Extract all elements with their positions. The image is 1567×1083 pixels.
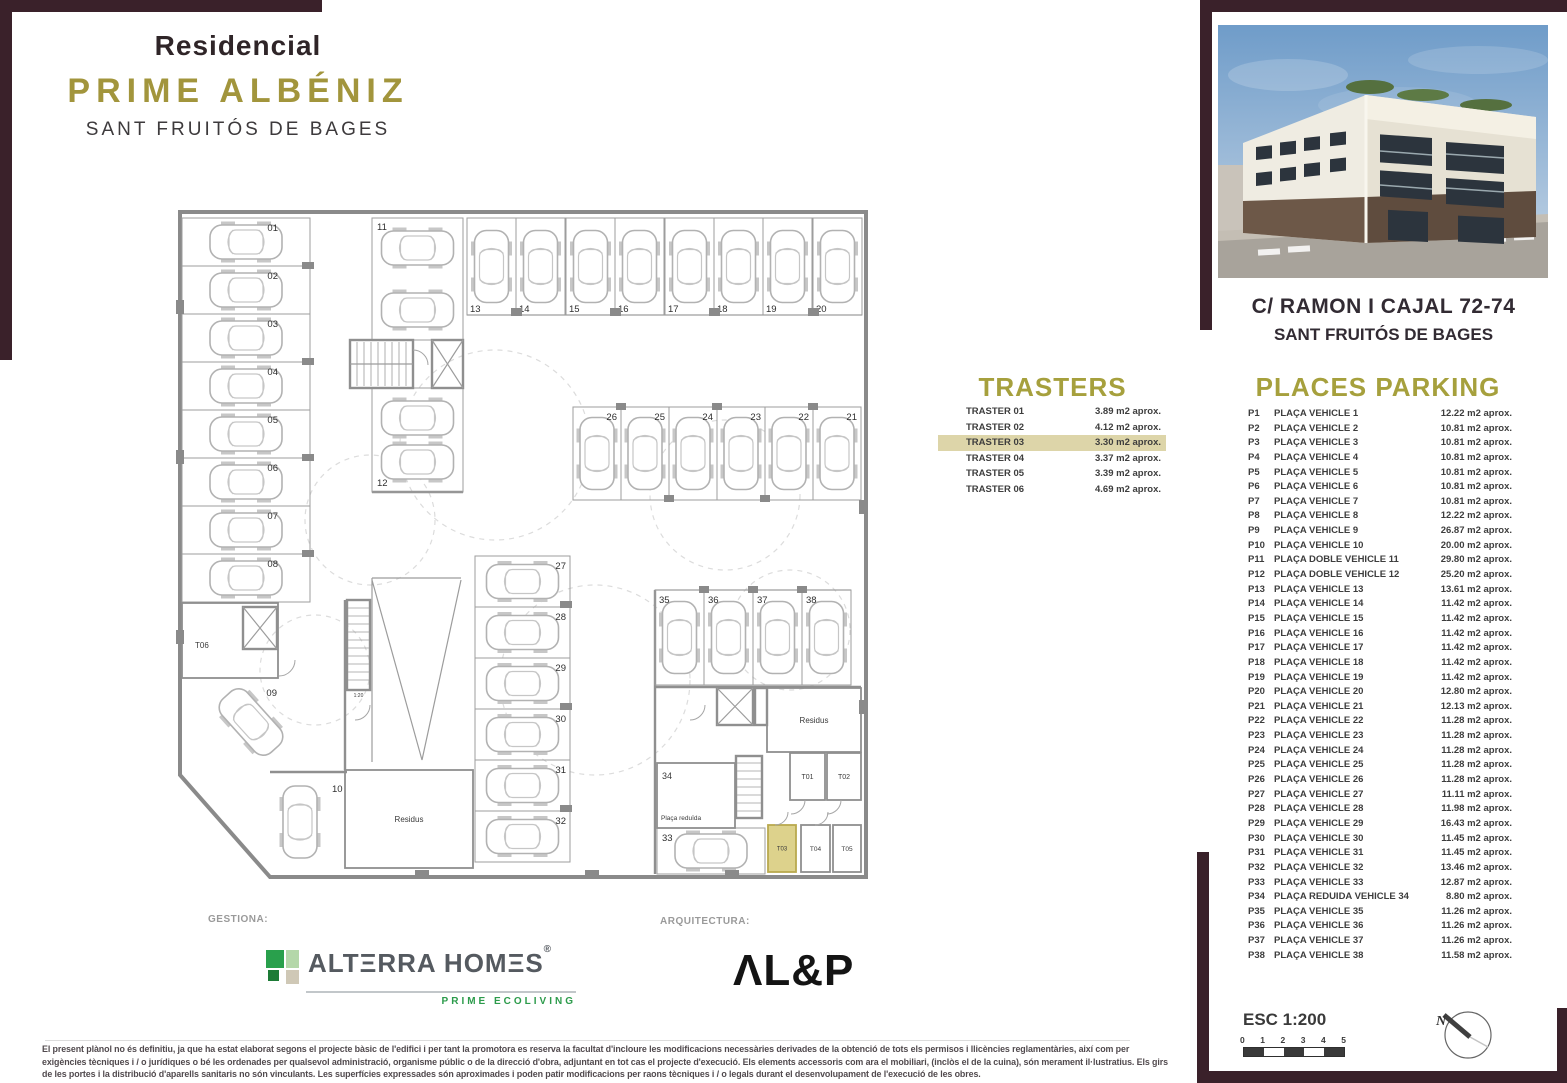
- parking-area: 11.42 m2 aprox.: [1441, 656, 1512, 671]
- compass-north-label: N: [1435, 1014, 1447, 1029]
- parking-name: PLAÇA VEHICLE 6: [1274, 480, 1358, 495]
- parking-area: 11.28 m2 aprox.: [1441, 744, 1512, 759]
- parking-code: P23: [1248, 729, 1265, 744]
- parking-name: PLAÇA VEHICLE 35: [1274, 905, 1363, 920]
- stall-number: 27: [555, 561, 566, 572]
- parking-name: PLAÇA VEHICLE 1: [1274, 407, 1358, 422]
- parking-row: P4PLAÇA VEHICLE 410.81 m2 aprox.: [1230, 451, 1522, 466]
- address-town: SANT FRUITÓS DE BAGES: [1200, 325, 1567, 345]
- corner-bracket-top-right-v: [1200, 0, 1212, 330]
- parking-code: P24: [1248, 744, 1265, 759]
- car-icon: [473, 231, 511, 303]
- parking-code: P7: [1248, 495, 1260, 510]
- parking-area: 10.81 m2 aprox.: [1441, 480, 1512, 495]
- stall-number: 28: [555, 612, 566, 623]
- car-icon: [770, 418, 808, 490]
- parking-code: P10: [1248, 539, 1265, 554]
- parking-row: P5PLAÇA VEHICLE 510.81 m2 aprox.: [1230, 466, 1522, 481]
- parking-area: 29.80 m2 aprox.: [1441, 553, 1512, 568]
- stall-number: 38: [806, 595, 817, 606]
- stall-number: 30: [555, 714, 566, 725]
- parking-name: PLAÇA VEHICLE 9: [1274, 524, 1358, 539]
- parking-code: P21: [1248, 700, 1265, 715]
- stall-number: 29: [555, 663, 566, 674]
- parking-row: P26PLAÇA VEHICLE 2611.28 m2 aprox.: [1230, 773, 1522, 788]
- car-icon: [578, 418, 616, 490]
- parking-name: PLAÇA VEHICLE 2: [1274, 422, 1358, 437]
- parking-name: PLAÇA VEHICLE 28: [1274, 802, 1363, 817]
- parking-row: P16PLAÇA VEHICLE 1611.42 m2 aprox.: [1230, 627, 1522, 642]
- stall-number: 02: [267, 271, 278, 282]
- car-icon: [213, 683, 289, 762]
- parking-name: PLAÇA VEHICLE 36: [1274, 919, 1363, 934]
- stall-number: 21: [846, 412, 857, 423]
- car-icon: [769, 231, 807, 303]
- brand-residencial: Residencial: [20, 30, 456, 62]
- car-icon: [487, 818, 559, 856]
- building-photo: [1218, 25, 1548, 278]
- parking-area: 11.28 m2 aprox.: [1441, 729, 1512, 744]
- parking-name: PLAÇA REDUIDA VEHICLE 34: [1274, 890, 1409, 905]
- address-block: C/ RAMON I CAJAL 72-74 SANT FRUITÓS DE B…: [1200, 295, 1567, 345]
- parking-code: P35: [1248, 905, 1265, 920]
- parking-code: P27: [1248, 788, 1265, 803]
- stall-number: 37: [757, 595, 768, 606]
- parking-area: 11.11 m2 aprox.: [1442, 788, 1512, 803]
- traster-name: TRASTER 05: [966, 468, 1024, 479]
- brand-block: Residencial PRIME ALBÉNIZ SANT FRUITÓS D…: [20, 30, 456, 141]
- parking-name: PLAÇA VEHICLE 32: [1274, 861, 1363, 876]
- traster-area: 3.89 m2 aprox.: [1095, 404, 1161, 420]
- traster-row: TRASTER 053.39 m2 aprox.: [938, 466, 1166, 482]
- car-icon: [674, 418, 712, 490]
- parking-area: 11.42 m2 aprox.: [1441, 627, 1512, 642]
- parking-area: 12.22 m2 aprox.: [1441, 509, 1512, 524]
- car-icon: [671, 231, 709, 303]
- parking-name: PLAÇA VEHICLE 5: [1274, 466, 1358, 481]
- disclaimer-line3: de les portes i la distribució d'aparell…: [42, 1068, 1194, 1081]
- parking-name: PLAÇA VEHICLE 16: [1274, 627, 1363, 642]
- parking-area: 13.61 m2 aprox.: [1441, 583, 1512, 598]
- parking-code: P20: [1248, 685, 1265, 700]
- parking-code: P36: [1248, 919, 1265, 934]
- disclaimer-rule: [45, 1040, 1130, 1041]
- parking-area: 10.81 m2 aprox.: [1441, 451, 1512, 466]
- corner-bracket-bottom-left-v: [1197, 852, 1209, 1083]
- traster-name: TRASTER 04: [966, 453, 1024, 464]
- stall-number: 31: [555, 765, 566, 776]
- parking-code: P5: [1248, 466, 1260, 481]
- gestiona-label: GESTIONA:: [208, 914, 268, 925]
- parking-name: PLAÇA VEHICLE 33: [1274, 876, 1363, 891]
- scale-tick: 5: [1341, 1035, 1346, 1045]
- car-icon: [621, 231, 659, 303]
- room-label: Residus: [800, 716, 829, 725]
- parking-code: P9: [1248, 524, 1260, 539]
- alterra-name: ALTΞRRA HOMΞS: [308, 948, 544, 979]
- stall-number: 23: [750, 412, 761, 423]
- parking-row: P37PLAÇA VEHICLE 3711.26 m2 aprox.: [1230, 934, 1522, 949]
- scale-tick: 0: [1240, 1035, 1245, 1045]
- stall-number: 09: [266, 688, 277, 699]
- parking-row: P10PLAÇA VEHICLE 1020.00 m2 aprox.: [1230, 539, 1522, 554]
- parking-code: P31: [1248, 846, 1265, 861]
- arquitectura-label: ARQUITECTURA:: [660, 916, 750, 927]
- parking-name: PLAÇA VEHICLE 3: [1274, 436, 1358, 451]
- car-icon: [487, 614, 559, 652]
- parking-area: 13.46 m2 aprox.: [1441, 861, 1512, 876]
- stall-number: 07: [267, 511, 278, 522]
- parking-area: 12.80 m2 aprox.: [1441, 685, 1512, 700]
- room-label: T06: [195, 641, 209, 650]
- room-label: T05: [841, 846, 853, 853]
- parking-area: 11.42 m2 aprox.: [1441, 671, 1512, 686]
- parking-code: P22: [1248, 714, 1265, 729]
- car-icon: [382, 229, 454, 267]
- stall-number: 36: [708, 595, 719, 606]
- parking-row: P18PLAÇA VEHICLE 1811.42 m2 aprox.: [1230, 656, 1522, 671]
- car-icon: [382, 291, 454, 329]
- stall-number: 05: [267, 415, 278, 426]
- elevator-left: [243, 607, 277, 649]
- corner-bracket-bottom-right-v: [1557, 1008, 1567, 1083]
- parking-code: P11: [1248, 553, 1264, 568]
- parking-row: P1PLAÇA VEHICLE 112.22 m2 aprox.: [1230, 407, 1522, 422]
- traster-area: 3.30 m2 aprox.: [1095, 435, 1161, 451]
- traster-name: TRASTER 03: [966, 437, 1024, 448]
- parking-row: P11PLAÇA DOBLE VEHICLE 1129.80 m2 aprox.: [1230, 553, 1522, 568]
- parking-code: P28: [1248, 802, 1265, 817]
- parking-code: P33: [1248, 876, 1265, 891]
- parking-code: P29: [1248, 817, 1265, 832]
- parking-row: P2PLAÇA VEHICLE 210.81 m2 aprox.: [1230, 422, 1522, 437]
- parking-name: PLAÇA VEHICLE 15: [1274, 612, 1363, 627]
- parking-row: P32PLAÇA VEHICLE 3213.46 m2 aprox.: [1230, 861, 1522, 876]
- car-icon: [675, 832, 747, 870]
- parking-code: P2: [1248, 422, 1260, 437]
- parking-area: 12.13 m2 aprox.: [1441, 700, 1512, 715]
- parking-name: PLAÇA VEHICLE 24: [1274, 744, 1363, 759]
- stall-number: 17: [668, 304, 679, 315]
- parking-name: PLAÇA VEHICLE 38: [1274, 949, 1363, 964]
- parking-code: P38: [1248, 949, 1265, 964]
- parking-name: PLAÇA VEHICLE 17: [1274, 641, 1363, 656]
- parking-code: P17: [1248, 641, 1265, 656]
- alterra-rule: [306, 991, 576, 993]
- brand-town: SANT FRUITÓS DE BAGES: [20, 119, 456, 141]
- car-icon: [281, 786, 319, 858]
- car-icon: [382, 399, 454, 437]
- parking-row: P24PLAÇA VEHICLE 2411.28 m2 aprox.: [1230, 744, 1522, 759]
- traster-row: TRASTER 064.69 m2 aprox.: [938, 482, 1166, 498]
- parking-code: P4: [1248, 451, 1260, 466]
- parking-row: P15PLAÇA VEHICLE 1511.42 m2 aprox.: [1230, 612, 1522, 627]
- parking-code: P19: [1248, 671, 1265, 686]
- parking-row: P14PLAÇA VEHICLE 1411.42 m2 aprox.: [1230, 597, 1522, 612]
- stall-number: 33: [662, 833, 673, 844]
- parking-area: 11.45 m2 aprox.: [1441, 846, 1512, 861]
- alterra-homes-logo: ALTΞRRA HOMΞS ® PRIME ECOLIVING: [266, 948, 576, 1007]
- scale-bar: [1243, 1047, 1345, 1057]
- stall-number: 15: [569, 304, 580, 315]
- parking-area: 10.81 m2 aprox.: [1441, 495, 1512, 510]
- parking-area: 11.26 m2 aprox.: [1441, 905, 1512, 920]
- traster-name: TRASTER 06: [966, 484, 1024, 495]
- traster-name: TRASTER 01: [966, 406, 1024, 417]
- alterra-squares-icon: [266, 948, 300, 988]
- car-icon: [522, 231, 560, 303]
- elevator-central: [432, 340, 463, 388]
- parking-area: 20.00 m2 aprox.: [1441, 539, 1512, 554]
- parking-name: PLAÇA VEHICLE 13: [1274, 583, 1363, 598]
- parking-row: P34PLAÇA REDUIDA VEHICLE 348.80 m2 aprox…: [1230, 890, 1522, 905]
- parking-row: P20PLAÇA VEHICLE 2012.80 m2 aprox.: [1230, 685, 1522, 700]
- parking-row: P22PLAÇA VEHICLE 2211.28 m2 aprox.: [1230, 714, 1522, 729]
- parking-area: 11.45 m2 aprox.: [1441, 832, 1512, 847]
- car-icon: [818, 418, 856, 490]
- room-label: T04: [810, 846, 822, 853]
- stall-number: 19: [766, 304, 777, 315]
- car-icon: [819, 231, 857, 303]
- parking-name: PLAÇA DOBLE VEHICLE 12: [1274, 568, 1399, 583]
- traster-area: 3.39 m2 aprox.: [1095, 466, 1161, 482]
- parking-row: P29PLAÇA VEHICLE 2916.43 m2 aprox.: [1230, 817, 1522, 832]
- traster-row: TRASTER 024.12 m2 aprox.: [938, 420, 1166, 436]
- parking-area: 11.42 m2 aprox.: [1441, 641, 1512, 656]
- parking-code: P6: [1248, 480, 1260, 495]
- stall-number: 01: [267, 223, 278, 234]
- car-icon: [487, 767, 559, 805]
- parking-code: P18: [1248, 656, 1265, 671]
- parking-area: 25.20 m2 aprox.: [1441, 568, 1512, 583]
- parking-row: P27PLAÇA VEHICLE 2711.11 m2 aprox.: [1230, 788, 1522, 803]
- brand-prime-albeniz: PRIME ALBÉNIZ: [20, 72, 456, 111]
- parking-code: P32: [1248, 861, 1265, 876]
- traster-area: 3.37 m2 aprox.: [1095, 451, 1161, 467]
- parking-row: P9PLAÇA VEHICLE 926.87 m2 aprox.: [1230, 524, 1522, 539]
- parking-name: PLAÇA VEHICLE 8: [1274, 509, 1358, 524]
- stall-number: 11: [377, 222, 387, 233]
- parking-row: P13PLAÇA VEHICLE 1313.61 m2 aprox.: [1230, 583, 1522, 598]
- parking-row: P30PLAÇA VEHICLE 3011.45 m2 aprox.: [1230, 832, 1522, 847]
- parking-area: 26.87 m2 aprox.: [1441, 524, 1512, 539]
- scale-tick: 4: [1321, 1035, 1326, 1045]
- parking-area: 16.43 m2 aprox.: [1441, 817, 1512, 832]
- parking-row: P23PLAÇA VEHICLE 2311.28 m2 aprox.: [1230, 729, 1522, 744]
- parking-area: 12.87 m2 aprox.: [1441, 876, 1512, 891]
- stall-number: 26: [606, 412, 617, 423]
- parking-code: P25: [1248, 758, 1265, 773]
- parking-row: P21PLAÇA VEHICLE 2112.13 m2 aprox.: [1230, 700, 1522, 715]
- parking-row: P7PLAÇA VEHICLE 710.81 m2 aprox.: [1230, 495, 1522, 510]
- stall-number: 13: [470, 304, 481, 315]
- parking-row: P17PLAÇA VEHICLE 1711.42 m2 aprox.: [1230, 641, 1522, 656]
- car-icon: [626, 418, 664, 490]
- parking-name: PLAÇA VEHICLE 25: [1274, 758, 1363, 773]
- trasters-title: TRASTERS: [935, 372, 1170, 403]
- disclaimer: El present plànol no és definitiu, ja qu…: [42, 1043, 1194, 1081]
- parking-row: P12PLAÇA DOBLE VEHICLE 1225.20 m2 aprox.: [1230, 568, 1522, 583]
- parking-area: 11.26 m2 aprox.: [1441, 919, 1512, 934]
- traster-row: TRASTER 013.89 m2 aprox.: [938, 404, 1166, 420]
- parking-name: PLAÇA VEHICLE 21: [1274, 700, 1363, 715]
- corner-bracket-top-right-h: [1200, 0, 1567, 12]
- scale-tick: 1: [1260, 1035, 1265, 1045]
- stairs-right: [736, 756, 762, 818]
- parking-name: PLAÇA VEHICLE 30: [1274, 832, 1363, 847]
- car-icon: [720, 231, 758, 303]
- parking-code: P8: [1248, 509, 1260, 524]
- room-label: Residus: [395, 815, 424, 824]
- parking-row: P36PLAÇA VEHICLE 3611.26 m2 aprox.: [1230, 919, 1522, 934]
- parking-area: 11.42 m2 aprox.: [1441, 612, 1512, 627]
- parking-row: P35PLAÇA VEHICLE 3511.26 m2 aprox.: [1230, 905, 1522, 920]
- parking-name: PLAÇA VEHICLE 26: [1274, 773, 1363, 788]
- disclaimer-line1: El present plànol no és definitiu, ja qu…: [42, 1043, 1194, 1056]
- room-label: Plaça reduïda: [661, 815, 701, 822]
- parking-code: P26: [1248, 773, 1265, 788]
- parking-row: P3PLAÇA VEHICLE 310.81 m2 aprox.: [1230, 436, 1522, 451]
- parking-name: PLAÇA VEHICLE 20: [1274, 685, 1363, 700]
- car-icon: [808, 602, 846, 674]
- parking-name: PLAÇA VEHICLE 14: [1274, 597, 1363, 612]
- traster-row: TRASTER 033.30 m2 aprox.: [938, 435, 1166, 451]
- parking-name: PLAÇA VEHICLE 23: [1274, 729, 1363, 744]
- parking-code: P16: [1248, 627, 1265, 642]
- parking-name: PLAÇA DOBLE VEHICLE 11: [1274, 553, 1399, 568]
- car-icon: [722, 418, 760, 490]
- parking-area: 11.28 m2 aprox.: [1441, 758, 1512, 773]
- alterra-tagline: PRIME ECOLIVING: [266, 996, 576, 1007]
- parking-name: PLAÇA VEHICLE 37: [1274, 934, 1363, 949]
- scale-tick: 3: [1301, 1035, 1306, 1045]
- parking-area: 10.81 m2 aprox.: [1441, 466, 1512, 481]
- parking-code: P13: [1248, 583, 1265, 598]
- disclaimer-line2: exigències tècniques i / o jurídiques o …: [42, 1056, 1194, 1069]
- parking-row: P28PLAÇA VEHICLE 2811.98 m2 aprox.: [1230, 802, 1522, 817]
- parking-name: PLAÇA VEHICLE 22: [1274, 714, 1363, 729]
- parking-name: PLAÇA VEHICLE 10: [1274, 539, 1363, 554]
- stall-number: 12: [377, 478, 388, 489]
- parking-name: PLAÇA VEHICLE 4: [1274, 451, 1358, 466]
- room-label: 34: [662, 771, 672, 781]
- compass: N: [1428, 997, 1508, 1077]
- car-icon: [661, 602, 699, 674]
- traster-row: TRASTER 043.37 m2 aprox.: [938, 451, 1166, 467]
- parking-area: 11.28 m2 aprox.: [1441, 714, 1512, 729]
- parking-code: P1: [1248, 407, 1260, 422]
- registered-mark: ®: [544, 944, 551, 955]
- stall-number: 24: [702, 412, 713, 423]
- stall-number: 10: [332, 784, 343, 795]
- parking-name: PLAÇA VEHICLE 31: [1274, 846, 1363, 861]
- scale-tick: 2: [1281, 1035, 1286, 1045]
- stairs-left: [347, 600, 370, 690]
- parking-area: 10.81 m2 aprox.: [1441, 436, 1512, 451]
- car-icon: [759, 602, 797, 674]
- car-icon: [487, 716, 559, 754]
- parking-area: 12.22 m2 aprox.: [1441, 407, 1512, 422]
- corner-bracket-top-left-h: [0, 0, 322, 12]
- parking-row: P38PLAÇA VEHICLE 3811.58 m2 aprox.: [1230, 949, 1522, 964]
- parking-name: PLAÇA VEHICLE 7: [1274, 495, 1358, 510]
- plan-stalls-rooms: 0102030405060708091011121314151617181920…: [182, 218, 862, 874]
- stall-number: 08: [267, 559, 278, 570]
- parking-area: 11.28 m2 aprox.: [1441, 773, 1512, 788]
- parking-code: P37: [1248, 934, 1265, 949]
- stall-number: 22: [798, 412, 809, 423]
- traster-area: 4.69 m2 aprox.: [1095, 482, 1161, 498]
- stall-number: 35: [659, 595, 670, 606]
- elevator-right: [717, 688, 767, 725]
- trasters-table: TRASTER 013.89 m2 aprox.TRASTER 024.12 m…: [938, 404, 1166, 497]
- corner-bracket-top-left-v: [0, 0, 12, 360]
- parking-table: P1PLAÇA VEHICLE 112.22 m2 aprox.P2PLAÇA …: [1230, 407, 1522, 963]
- stall-number: 32: [555, 816, 566, 827]
- room-label: T03: [777, 847, 788, 853]
- corner-bracket-bottom-h: [1197, 1071, 1567, 1083]
- parking-row: P31PLAÇA VEHICLE 3111.45 m2 aprox.: [1230, 846, 1522, 861]
- scale-label: ESC 1:200: [1243, 1010, 1326, 1030]
- stall-number: 06: [267, 463, 278, 474]
- parking-area: 10.81 m2 aprox.: [1441, 422, 1512, 437]
- parking-code: P15: [1248, 612, 1265, 627]
- parking-row: P8PLAÇA VEHICLE 812.22 m2 aprox.: [1230, 509, 1522, 524]
- room-label: T01: [801, 774, 813, 781]
- parking-row: P25PLAÇA VEHICLE 2511.28 m2 aprox.: [1230, 758, 1522, 773]
- car-icon: [710, 602, 748, 674]
- parking-area: 8.80 m2 aprox.: [1446, 890, 1512, 905]
- stall-number: 04: [267, 367, 278, 378]
- parking-area: 11.58 m2 aprox.: [1441, 949, 1512, 964]
- parking-area: 11.98 m2 aprox.: [1441, 802, 1512, 817]
- parking-name: PLAÇA VEHICLE 27: [1274, 788, 1363, 803]
- car-icon: [487, 563, 559, 601]
- parking-code: P12: [1248, 568, 1265, 583]
- parking-row: P6PLAÇA VEHICLE 610.81 m2 aprox.: [1230, 480, 1522, 495]
- stall-number: 25: [654, 412, 665, 423]
- parking-name: PLAÇA VEHICLE 19: [1274, 671, 1363, 686]
- car-icon: [487, 665, 559, 703]
- traster-area: 4.12 m2 aprox.: [1095, 420, 1161, 436]
- stairs-central: [350, 340, 413, 388]
- room-label: T02: [838, 774, 850, 781]
- parking-code: P3: [1248, 436, 1260, 451]
- parking-row: P19PLAÇA VEHICLE 1911.42 m2 aprox.: [1230, 671, 1522, 686]
- alp-logo: ΛL&P: [733, 946, 854, 996]
- parking-name: PLAÇA VEHICLE 18: [1274, 656, 1363, 671]
- room-label: 1:20: [354, 693, 364, 699]
- parking-area: 11.42 m2 aprox.: [1441, 597, 1512, 612]
- car-icon: [382, 443, 454, 481]
- parking-code: P30: [1248, 832, 1265, 847]
- parking-row: P33PLAÇA VEHICLE 3312.87 m2 aprox.: [1230, 876, 1522, 891]
- scale-ticks: 012345: [1240, 1035, 1346, 1045]
- floor-plan: 0102030405060708091011121314151617181920…: [165, 200, 910, 890]
- parking-code: P14: [1248, 597, 1265, 612]
- traster-name: TRASTER 02: [966, 422, 1024, 433]
- parking-code: P34: [1248, 890, 1265, 905]
- parking-area: 11.26 m2 aprox.: [1441, 934, 1512, 949]
- car-icon: [572, 231, 610, 303]
- parking-title: PLACES PARKING: [1238, 372, 1518, 403]
- parking-name: PLAÇA VEHICLE 29: [1274, 817, 1363, 832]
- address-street: C/ RAMON I CAJAL 72-74: [1200, 295, 1567, 319]
- stall-number: 03: [267, 319, 278, 330]
